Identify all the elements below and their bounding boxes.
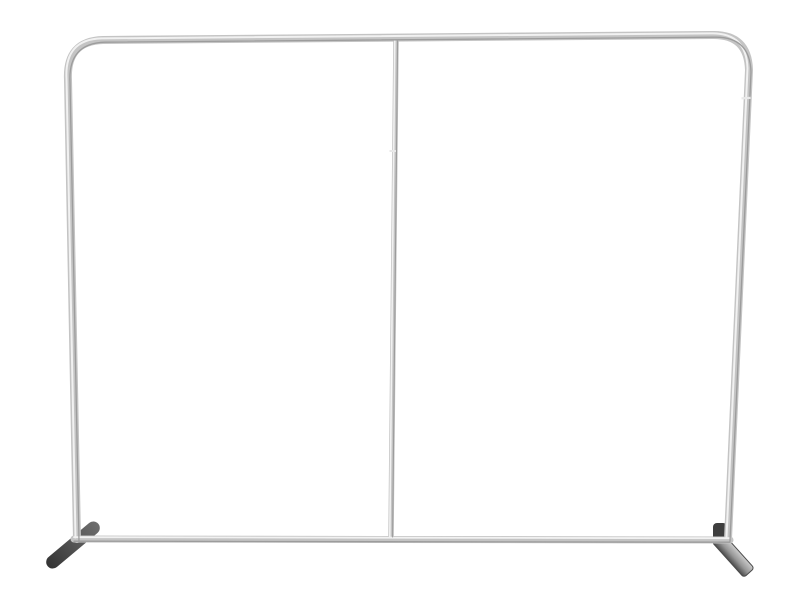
bottom-crossbar-highlight [74, 537, 730, 538]
photo-background [0, 0, 800, 600]
right-pole-seam [741, 97, 750, 100]
center-pole-seam [390, 150, 397, 152]
display-frame-illustration: Empty tension-fabric display backdrop fr… [0, 0, 800, 600]
bottom-crossbar-tube [74, 539, 730, 540]
product-photo: Empty tension-fabric display backdrop fr… [0, 0, 800, 600]
